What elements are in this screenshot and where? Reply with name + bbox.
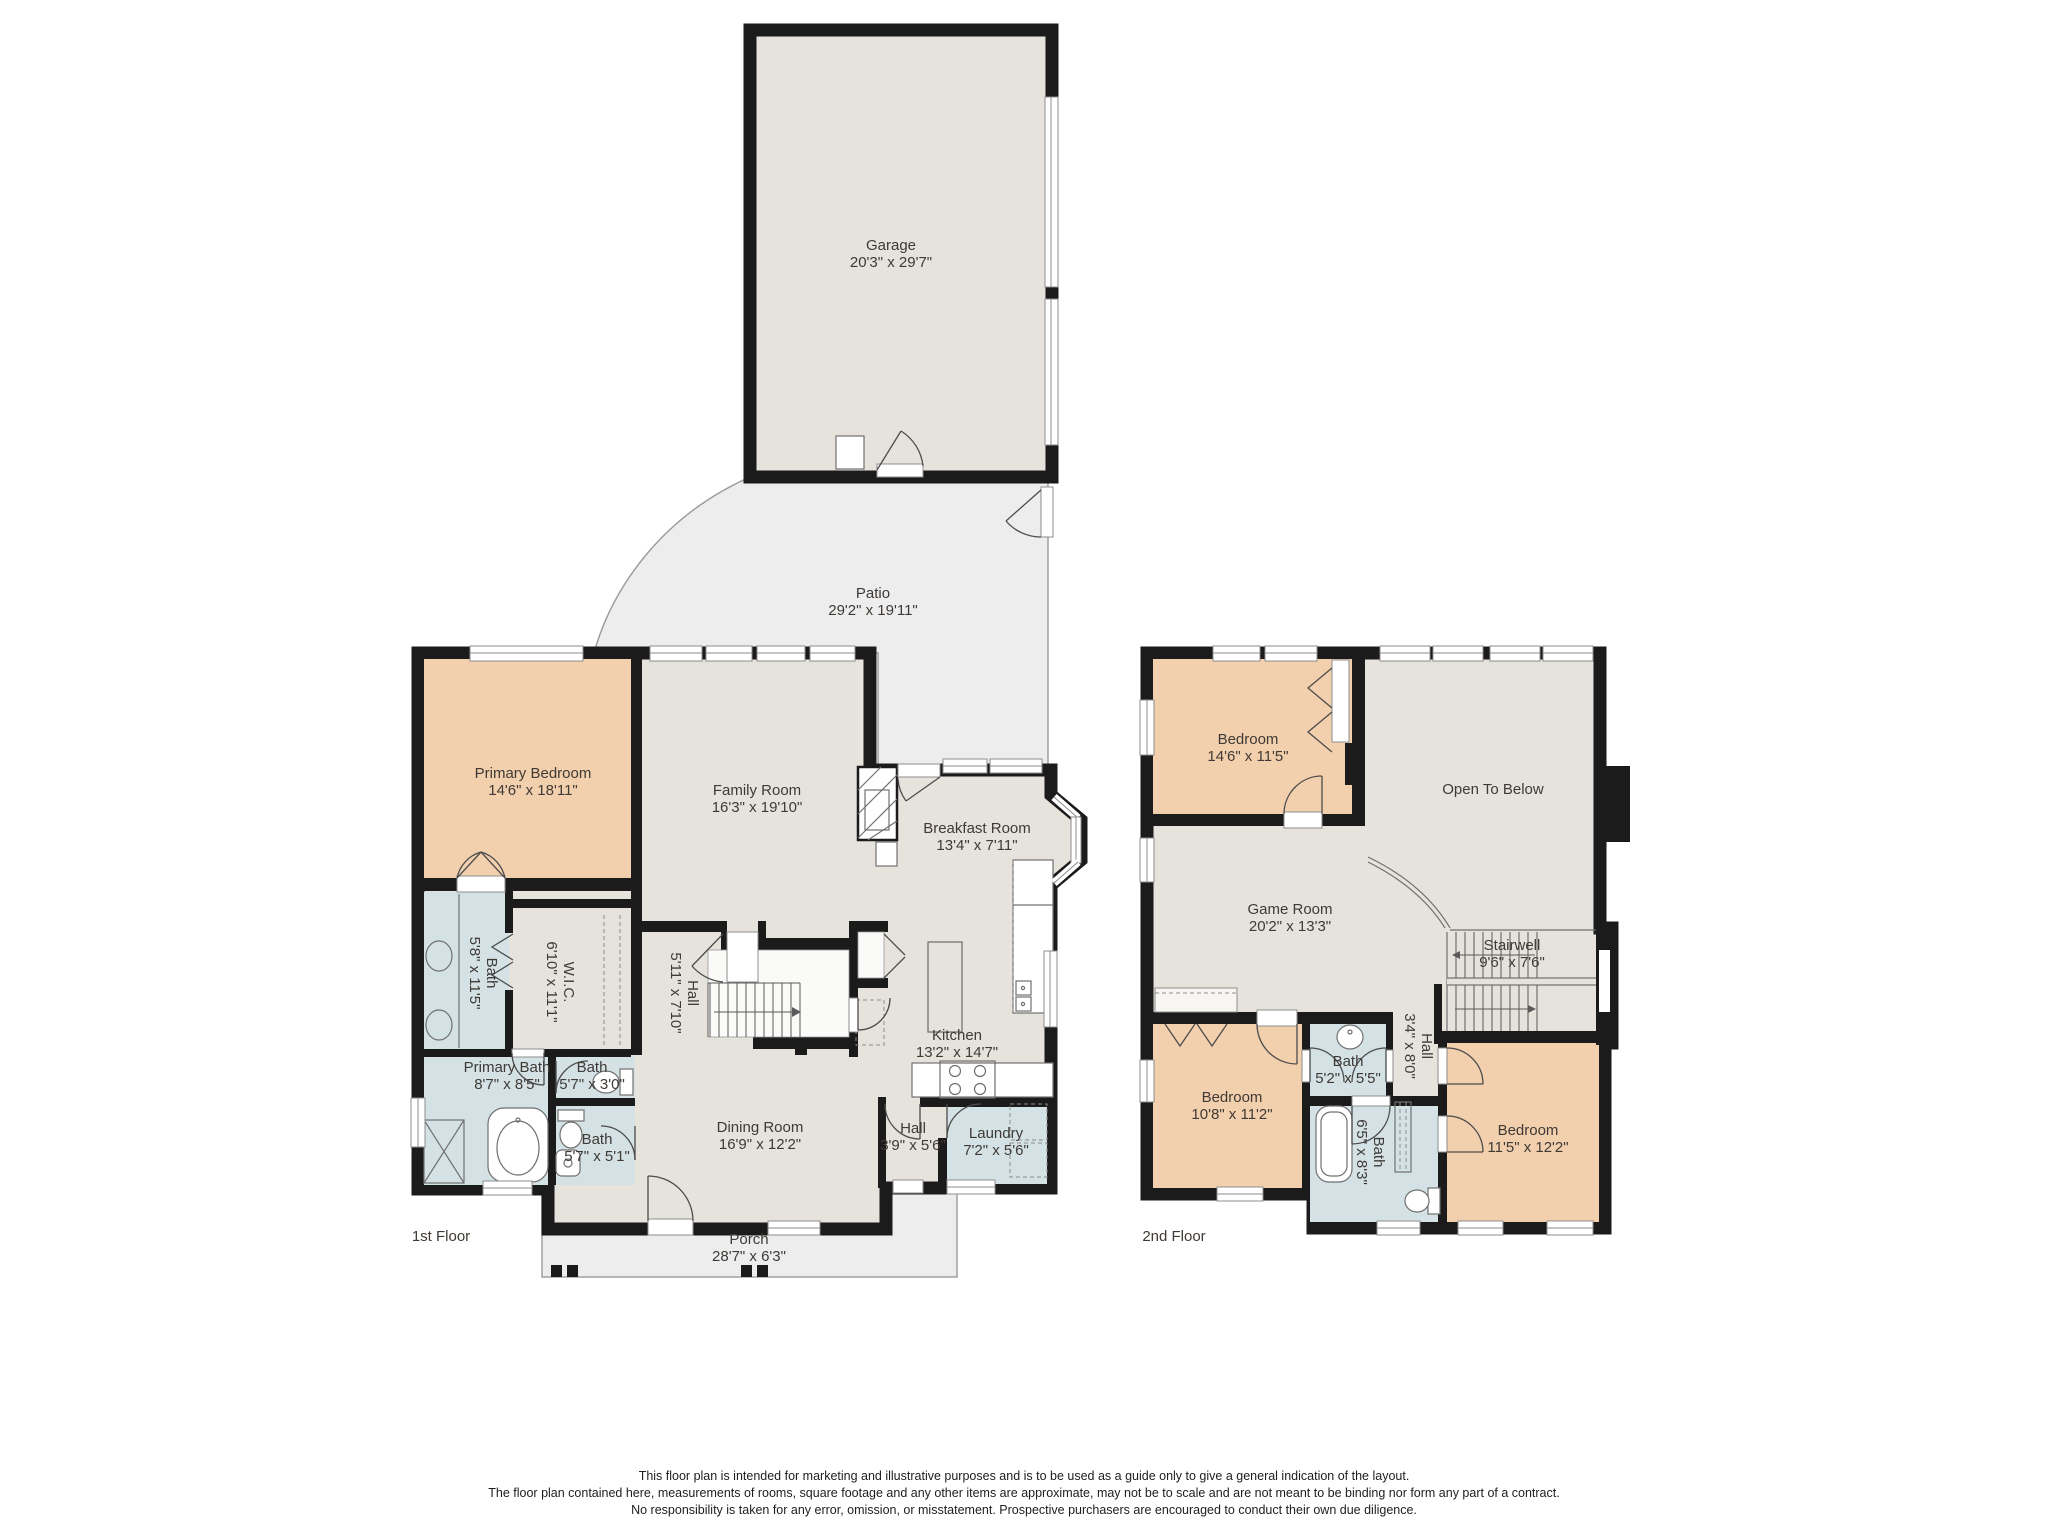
- first-floor-title: 1st Floor: [412, 1228, 470, 1245]
- stair-hall-dims: 5'11" x 7'10": [667, 952, 684, 1033]
- kitchen-island: [928, 942, 962, 1032]
- bath-tub-dims: 6'5" x 8'3": [1353, 1119, 1370, 1185]
- laundry-dims: 7'2" x 5'6": [963, 1142, 1029, 1159]
- entry-hall-dims: 3'9" x 5'6": [880, 1137, 946, 1154]
- bedroom-left-dims: 10'8" x 11'2": [1191, 1106, 1272, 1123]
- patio-label: Patio: [856, 585, 890, 602]
- disclaimer-line-1: This floor plan is intended for marketin…: [639, 1469, 1410, 1483]
- hall2-label: Hall: [1418, 1033, 1435, 1059]
- bedroom-right-dims: 11'5" x 12'2": [1487, 1139, 1568, 1156]
- bath-small-label: Bath: [1333, 1053, 1364, 1070]
- hall2-dims: 3'4" x 8'0": [1401, 1013, 1418, 1079]
- toilet-bowl: [560, 1122, 582, 1148]
- laundry-label: Laundry: [969, 1125, 1024, 1142]
- game-room-label: Game Room: [1247, 901, 1332, 918]
- patio-dims: 29'2" x 19'11": [828, 602, 918, 619]
- breakfast-room-dims: 13'4" x 7'11": [936, 837, 1017, 854]
- disclaimer: This floor plan is intended for marketin…: [488, 1469, 1559, 1517]
- porch-label: Porch: [729, 1231, 768, 1248]
- vanity-bath-dims: 5'8" x 11'5": [466, 937, 483, 1010]
- open-to-below-label: Open To Below: [1442, 781, 1544, 798]
- primary-bedroom-dims: 14'6" x 18'11": [488, 782, 578, 799]
- garage-door-right-upper: [1045, 97, 1058, 287]
- stairwell-dims: 9'6" x 7'6": [1479, 954, 1545, 971]
- wic-dims: 6'10" x 11'1": [543, 941, 560, 1022]
- garage-label: Garage: [866, 237, 916, 254]
- family-room-dims: 16'3" x 19'10": [712, 799, 803, 816]
- sink: [1337, 1025, 1363, 1049]
- water-heater: [836, 436, 864, 469]
- lower-bath-label: Bath: [582, 1131, 613, 1148]
- porch-back-door: [893, 1180, 923, 1193]
- primary-bedroom-label: Primary Bedroom: [475, 765, 592, 782]
- floor-plan-drawing: Garage 20'3" x 29'7" Patio 29'2" x 19'11…: [0, 0, 2048, 1536]
- wic-label: W.I.C.: [560, 962, 577, 1003]
- porch-post: [757, 1265, 768, 1277]
- kitchen-label: Kitchen: [932, 1027, 982, 1044]
- breakfast-room-label: Breakfast Room: [923, 820, 1031, 837]
- porch-post: [551, 1265, 562, 1277]
- second-floor-plan: Bedroom 14'6" x 11'5" Open To Below Game…: [1140, 646, 1630, 1245]
- porch-post: [567, 1265, 578, 1277]
- stairwell-label: Stairwell: [1484, 937, 1541, 954]
- game-room-dims: 20'2" x 13'3": [1249, 918, 1331, 935]
- kitchen-dims: 13'2" x 14'7": [916, 1044, 998, 1061]
- bedroom-left-label: Bedroom: [1202, 1089, 1263, 1106]
- toilet-bowl: [1405, 1190, 1429, 1212]
- disclaimer-line-3: No responsibility is taken for any error…: [631, 1503, 1417, 1517]
- chimney: [1598, 766, 1630, 842]
- bath-tub-label: Bath: [1370, 1137, 1387, 1168]
- porch-post: [741, 1265, 752, 1277]
- stair-hall-label: Hall: [684, 980, 701, 1006]
- garage-door-right-lower: [1045, 299, 1058, 445]
- bath-small-fixtures: [1337, 1025, 1363, 1049]
- dining-room-dims: 16'9" x 12'2": [719, 1136, 801, 1153]
- porch-dims: 28'7" x 6'3": [712, 1248, 786, 1265]
- floor-plan-page: Garage 20'3" x 29'7" Patio 29'2" x 19'11…: [0, 0, 2048, 1536]
- primary-bath-label: Primary Bath: [464, 1059, 551, 1076]
- toilet-bath-label: Bath: [577, 1059, 608, 1076]
- kitchen-counter-bottom: [912, 1063, 1053, 1097]
- vanity-bath-label: Bath: [483, 958, 500, 989]
- family-room-label: Family Room: [713, 782, 801, 799]
- game-room-built-in: [1155, 988, 1237, 1012]
- lower-bath-dims: 5'7" x 5'1": [564, 1148, 630, 1165]
- bedroom-top-label: Bedroom: [1218, 731, 1279, 748]
- bath-small-dims: 5'2" x 5'5": [1315, 1070, 1381, 1087]
- entry-hall-label: Hall: [900, 1120, 926, 1137]
- second-floor-title: 2nd Floor: [1142, 1228, 1205, 1245]
- primary-bath-dims: 8'7" x 8'5": [474, 1076, 540, 1093]
- dining-room-label: Dining Room: [717, 1119, 804, 1136]
- bedroom-top-dims: 14'6" x 11'5": [1207, 748, 1288, 765]
- toilet-tank: [558, 1110, 584, 1121]
- bedroom-right-label: Bedroom: [1498, 1122, 1559, 1139]
- garage-dims: 20'3" x 29'7": [850, 254, 932, 271]
- first-floor-plan: Garage 20'3" x 29'7" Patio 29'2" x 19'11…: [411, 30, 1081, 1277]
- disclaimer-line-2: The floor plan contained here, measureme…: [488, 1486, 1559, 1500]
- toilet-bath-dims: 5'7" x 3'0": [559, 1076, 625, 1093]
- toilet-tank: [1428, 1188, 1440, 1214]
